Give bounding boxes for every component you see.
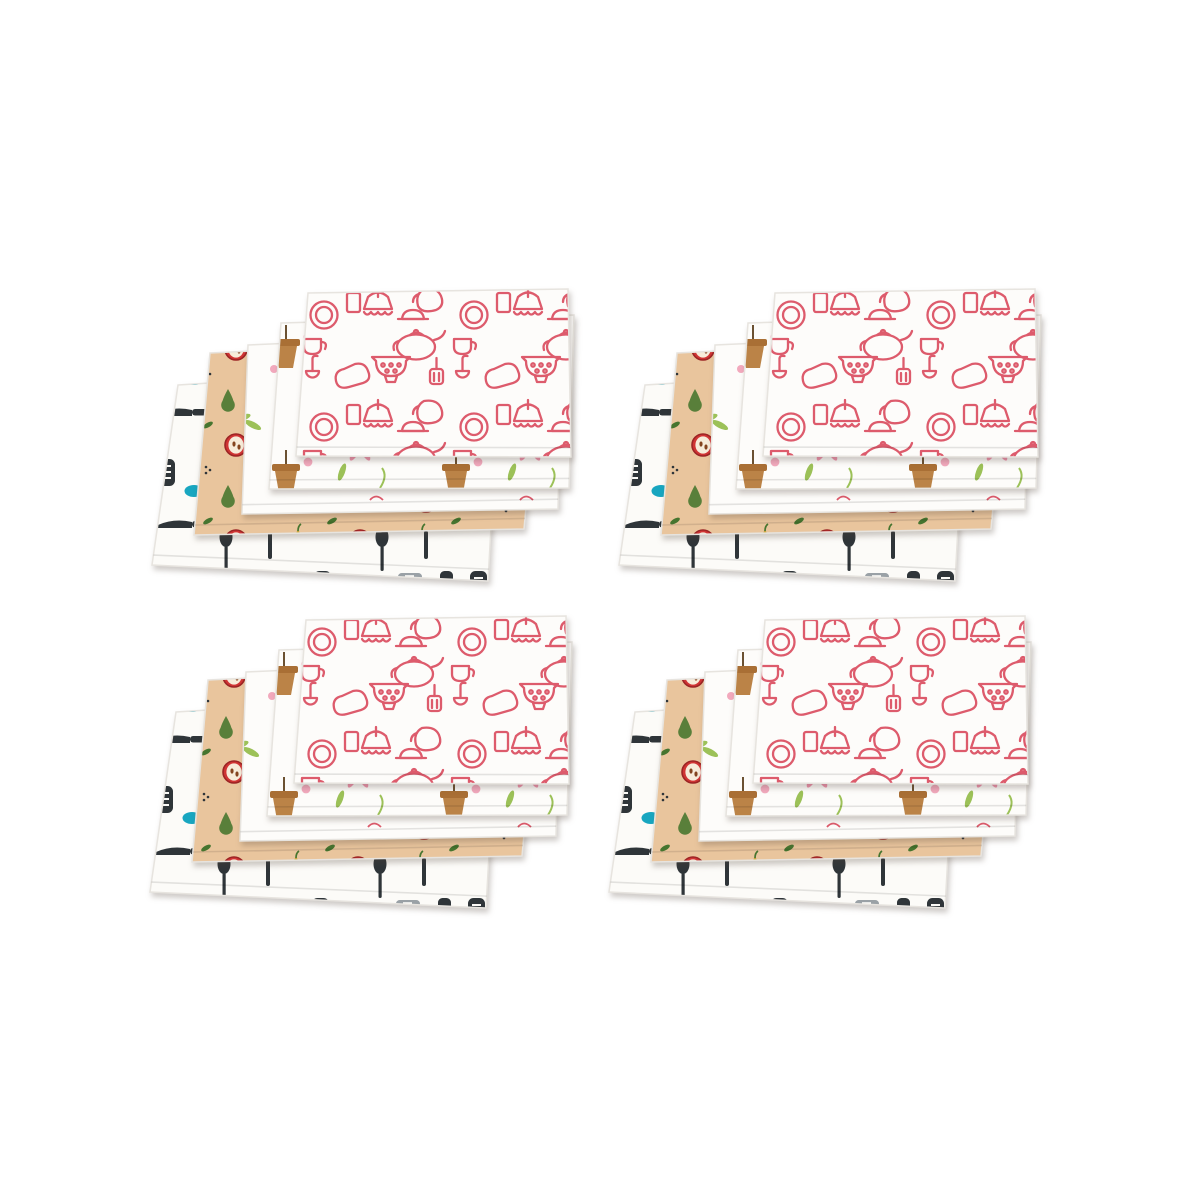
towel-red-kitchen-doodles-print-hem [764, 447, 1038, 448]
towel-red-kitchen-doodles-print [763, 289, 1038, 457]
towel-stacks-scene [0, 0, 1200, 1200]
towel-red-kitchen-doodles-print-hem [295, 774, 569, 775]
towel-red-kitchen-doodles-print-hem [754, 774, 1028, 775]
towel-red-kitchen-doodles-print-hem [297, 447, 571, 448]
towel-stack-bottom-left [150, 616, 572, 908]
towel-red-kitchen-doodles-print [296, 289, 571, 457]
towel-stack-bottom-right [609, 616, 1031, 908]
towel-red-kitchen-doodles-print [294, 616, 569, 784]
towel-red-kitchen-doodles-print [753, 616, 1028, 784]
towel-stack-top-left [152, 289, 574, 581]
product-photo [0, 0, 1200, 1200]
stacks-root [150, 289, 1041, 908]
towel-stack-top-right [619, 289, 1041, 581]
